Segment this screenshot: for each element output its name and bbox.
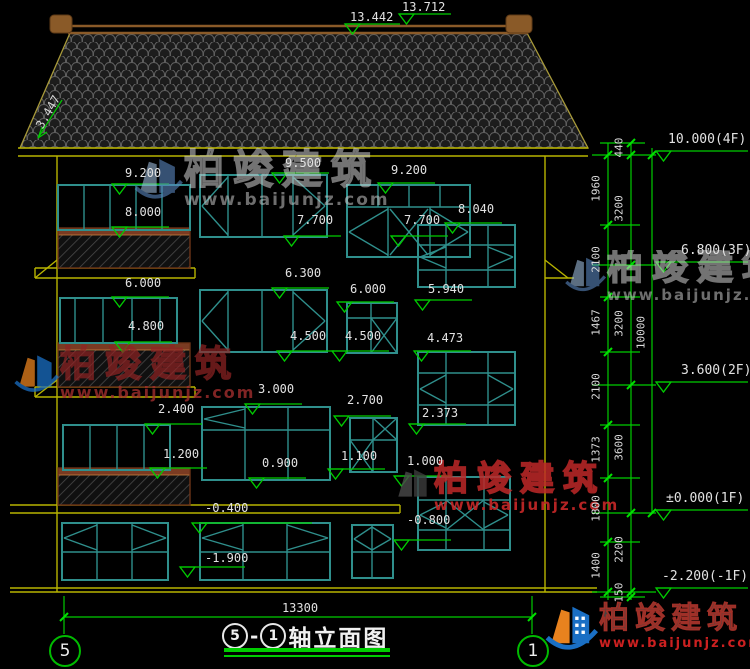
roof — [20, 15, 588, 148]
axis-bubble-left: 5 — [49, 635, 81, 667]
elevation-drawing-canvas: 柏竣建筑 www.baijunjz.com 柏竣建筑 www.baijunjz.… — [0, 0, 750, 669]
title-underline-thick — [224, 648, 390, 652]
title-separator: - — [250, 624, 258, 648]
title-axis-start-bubble: 5 — [222, 623, 248, 649]
overall-width-dimension: 13300 — [270, 601, 330, 615]
cad-drawing-layer — [0, 0, 750, 669]
brand-logo-icon — [543, 597, 599, 657]
title-underline-thin — [224, 655, 390, 657]
brand-url-text: www.baijunjz.com — [599, 637, 750, 650]
brand-cn-text: 柏竣建筑 — [599, 604, 750, 634]
brand-logo: 柏竣建筑 www.baijunjz.com — [543, 597, 750, 657]
title-axis-end-bubble: 1 — [260, 623, 286, 649]
